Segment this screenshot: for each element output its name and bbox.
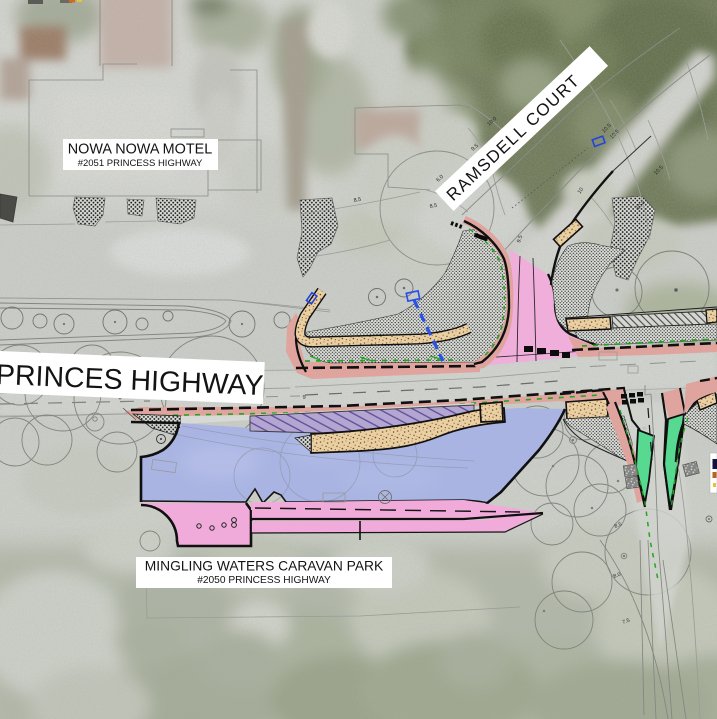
svg-text:8.5: 8.5 bbox=[353, 197, 361, 204]
svg-text:#2051 PRINCESS HIGHWAY: #2051 PRINCESS HIGHWAY bbox=[78, 158, 203, 169]
svg-text:8.5: 8.5 bbox=[429, 203, 437, 210]
svg-text:NOWA NOWA MOTEL: NOWA NOWA MOTEL bbox=[68, 142, 212, 158]
svg-text:#2050 PRINCESS HIGHWAY: #2050 PRINCESS HIGHWAY bbox=[197, 575, 331, 586]
svg-text:MINGLING WATERS CARAVAN PARK: MINGLING WATERS CARAVAN PARK bbox=[145, 559, 384, 574]
